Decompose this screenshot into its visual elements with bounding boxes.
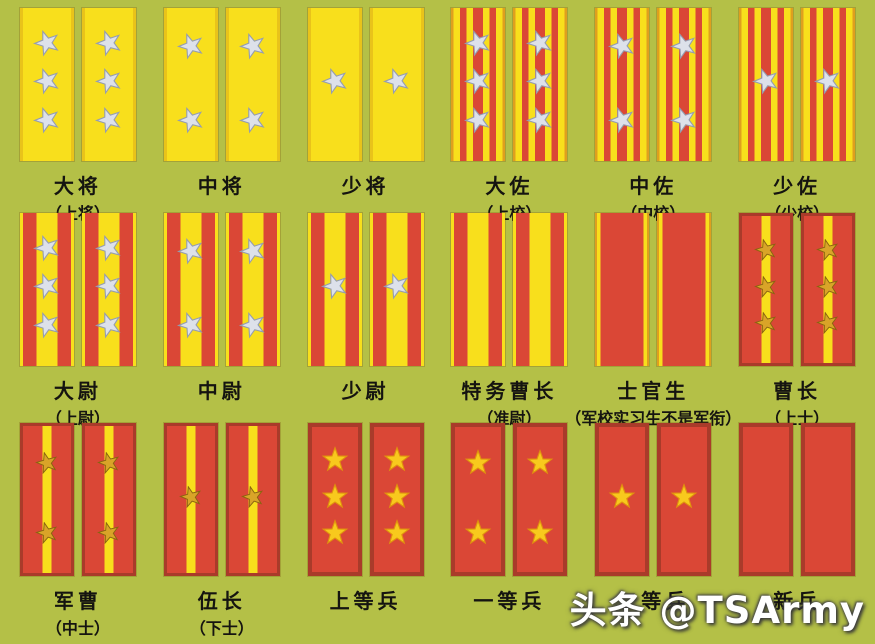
rank-star-icon <box>461 102 496 137</box>
collar-tab <box>226 423 280 576</box>
collar-tab <box>801 423 855 576</box>
rank-cell: 少佐（少校） <box>725 8 869 213</box>
collar-tab <box>657 423 711 576</box>
rank-cell: 少将 <box>294 8 438 213</box>
rank-cell: 特务曹长（准尉） <box>437 213 581 423</box>
rank-cell: 伍长（下士） <box>150 423 294 638</box>
collar-tab <box>370 213 424 366</box>
collar-tab-pair <box>308 8 424 161</box>
rank-name: 一等兵 <box>473 585 545 614</box>
rank-name: 少将 <box>342 170 390 199</box>
rank-star-icon <box>523 64 558 99</box>
collar-tab-pair <box>164 213 280 366</box>
rank-star-icon <box>527 519 554 546</box>
rank-star-icon <box>173 234 208 269</box>
collar-tab-pair <box>595 423 711 576</box>
collar-tab-pair <box>308 213 424 366</box>
collar-tab <box>451 8 505 161</box>
insignia-grid: 大将（上将）中将少将大佐（上校）中佐（中校）少佐（少校）大尉（上尉）中尉少尉特务… <box>0 0 875 638</box>
rank-name: 军曹 <box>54 585 102 614</box>
rank-cell: 士官生（军校实习生不是军衔） <box>581 213 725 423</box>
rank-star-icon <box>30 64 65 99</box>
collar-tab <box>657 213 711 366</box>
rank-star-icon <box>30 102 65 137</box>
collar-tab <box>595 423 649 576</box>
collar-tab-pair <box>739 423 855 576</box>
collar-tab-pair <box>20 8 136 161</box>
collar-tab-pair <box>164 8 280 161</box>
insignia-chart: 大将（上将）中将少将大佐（上校）中佐（中校）少佐（少校）大尉（上尉）中尉少尉特务… <box>0 0 875 644</box>
collar-tab <box>164 213 218 366</box>
rank-star-icon <box>465 450 492 477</box>
rank-name: 中佐 <box>629 170 677 199</box>
rank-star-icon <box>92 307 127 342</box>
rank-name: 中将 <box>198 170 246 199</box>
rank-star-icon <box>235 29 270 64</box>
rank-star-icon <box>461 64 496 99</box>
rank-name: 大佐 <box>485 170 533 199</box>
collar-tab-pair <box>20 423 136 576</box>
rank-cell: 中将 <box>150 8 294 213</box>
collar-tab <box>739 213 793 366</box>
rank-star-icon <box>317 64 352 99</box>
rank-star-icon <box>811 64 846 99</box>
collar-tab <box>308 213 362 366</box>
rank-star-icon <box>92 231 127 266</box>
rank-star-icon <box>605 102 640 137</box>
rank-star-icon <box>749 64 784 99</box>
rank-cell: 上等兵 <box>294 423 438 638</box>
collar-tab <box>164 8 218 161</box>
rank-star-icon <box>527 450 554 477</box>
rank-cell: 大尉（上尉） <box>6 213 150 423</box>
rank-alt-name: （中士） <box>46 615 110 639</box>
rank-star-icon <box>752 272 780 300</box>
rank-star-icon <box>30 26 65 61</box>
rank-star-icon <box>379 269 414 304</box>
rank-star-icon <box>33 449 61 477</box>
rank-star-icon <box>605 29 640 64</box>
watermark: 头条 @TSArmy <box>570 580 865 634</box>
rank-star-icon <box>814 309 842 337</box>
collar-tab-pair <box>739 213 855 366</box>
collar-tab <box>595 8 649 161</box>
rank-star-icon <box>33 519 61 547</box>
collar-tab <box>801 213 855 366</box>
rank-cell: 军曹（中士） <box>6 423 150 638</box>
rank-star-icon <box>379 64 414 99</box>
rank-star-icon <box>173 102 208 137</box>
collar-tab <box>226 213 280 366</box>
collar-tab <box>308 423 362 576</box>
rank-star-icon <box>30 269 65 304</box>
collar-tab <box>82 8 136 161</box>
collar-tab <box>82 213 136 366</box>
collar-tab <box>20 213 74 366</box>
collar-tab-pair <box>595 8 711 161</box>
rank-star-icon <box>173 307 208 342</box>
rank-star-icon <box>667 29 702 64</box>
rank-star-icon <box>752 236 780 264</box>
rank-star-icon <box>814 236 842 264</box>
rank-name: 伍长 <box>198 585 246 614</box>
collar-tab-pair <box>308 423 424 576</box>
rank-star-icon <box>235 102 270 137</box>
collar-tab <box>595 213 649 366</box>
rank-cell: 大将（上将） <box>6 8 150 213</box>
collar-tab-pair <box>451 213 567 366</box>
rank-star-icon <box>95 519 123 547</box>
collar-tab <box>739 8 793 161</box>
rank-name: 中尉 <box>198 375 246 404</box>
rank-name: 大尉 <box>54 375 102 404</box>
rank-star-icon <box>461 26 496 61</box>
collar-tab <box>164 423 218 576</box>
rank-alt-name: （下士） <box>190 615 254 639</box>
rank-cell: 中尉 <box>150 213 294 423</box>
collar-tab <box>370 423 424 576</box>
collar-tab-pair <box>451 8 567 161</box>
rank-star-icon <box>239 482 267 510</box>
collar-tab-pair <box>739 8 855 161</box>
rank-cell: 大佐（上校） <box>437 8 581 213</box>
rank-star-icon <box>814 272 842 300</box>
rank-star-icon <box>465 519 492 546</box>
collar-tab <box>20 423 74 576</box>
rank-star-icon <box>523 102 558 137</box>
rank-name: 少佐 <box>773 170 821 199</box>
rank-name: 士官生 <box>617 375 689 404</box>
rank-star-icon <box>383 519 410 546</box>
rank-name: 上等兵 <box>330 585 402 614</box>
collar-tab <box>451 423 505 576</box>
rank-star-icon <box>92 269 127 304</box>
rank-star-icon <box>30 307 65 342</box>
rank-star-icon <box>173 29 208 64</box>
collar-tab-pair <box>595 213 711 366</box>
rank-star-icon <box>235 234 270 269</box>
collar-tab <box>513 213 567 366</box>
collar-tab <box>513 423 567 576</box>
collar-tab <box>370 8 424 161</box>
rank-star-icon <box>235 307 270 342</box>
collar-tab <box>739 423 793 576</box>
rank-star-icon <box>752 309 780 337</box>
collar-tab <box>226 8 280 161</box>
rank-star-icon <box>92 64 127 99</box>
rank-cell: 少尉 <box>294 213 438 423</box>
rank-cell: 中佐（中校） <box>581 8 725 213</box>
rank-star-icon <box>667 102 702 137</box>
rank-star-icon <box>523 26 558 61</box>
rank-star-icon <box>95 449 123 477</box>
collar-tab <box>513 8 567 161</box>
rank-cell: 曹长（上士） <box>725 213 869 423</box>
collar-tab-pair <box>20 213 136 366</box>
rank-name: 大将 <box>54 170 102 199</box>
rank-star-icon <box>30 231 65 266</box>
rank-star-icon <box>317 269 352 304</box>
collar-tab <box>451 213 505 366</box>
collar-tab <box>20 8 74 161</box>
rank-name: 少尉 <box>342 375 390 404</box>
collar-tab <box>82 423 136 576</box>
rank-star-icon <box>92 26 127 61</box>
collar-tab-pair <box>164 423 280 576</box>
rank-name: 曹长 <box>773 375 821 404</box>
rank-name: 特务曹长 <box>461 375 557 404</box>
collar-tab <box>308 8 362 161</box>
rank-star-icon <box>383 483 410 510</box>
collar-tab <box>801 8 855 161</box>
collar-tab <box>657 8 711 161</box>
rank-cell: 一等兵 <box>437 423 581 638</box>
rank-star-icon <box>321 483 348 510</box>
rank-star-icon <box>383 447 410 474</box>
rank-star-icon <box>92 102 127 137</box>
rank-star-icon <box>321 519 348 546</box>
rank-star-icon <box>321 447 348 474</box>
rank-star-icon <box>177 482 205 510</box>
collar-tab-pair <box>451 423 567 576</box>
rank-star-icon <box>609 483 636 510</box>
rank-star-icon <box>671 483 698 510</box>
